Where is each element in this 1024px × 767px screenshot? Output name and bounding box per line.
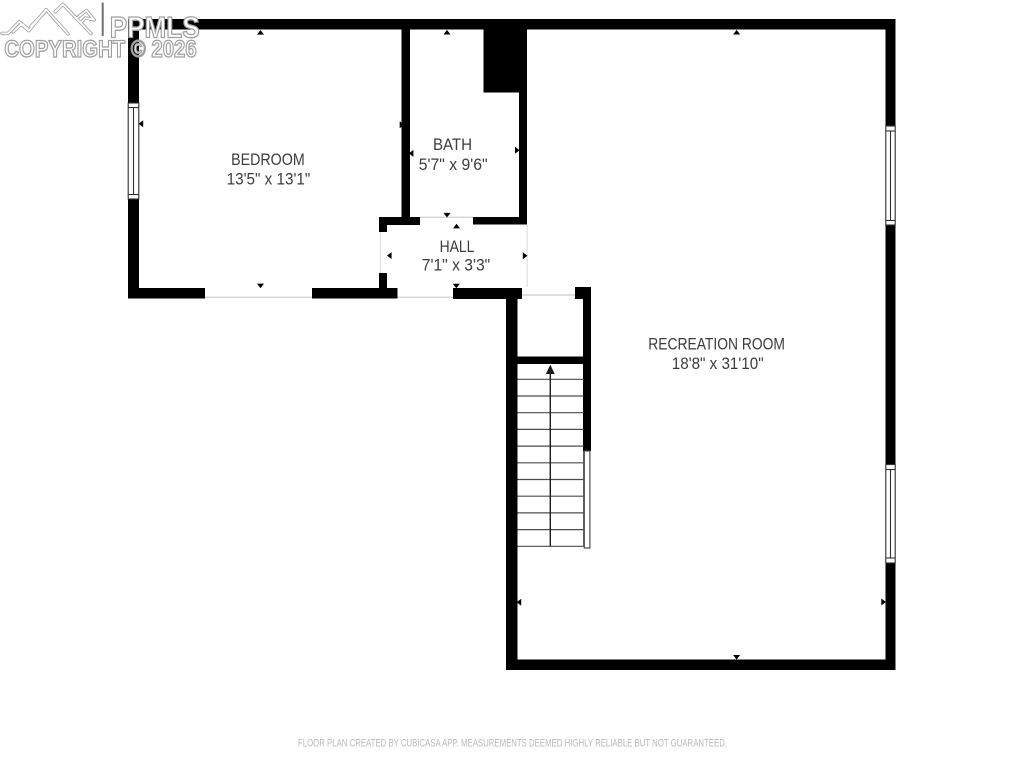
svg-text:BATH: BATH [433, 135, 472, 154]
svg-text:BEDROOM: BEDROOM [231, 150, 305, 169]
svg-text:18'8" x 31'10": 18'8" x 31'10" [672, 354, 764, 373]
svg-text:5'7" x 9'6": 5'7" x 9'6" [419, 155, 488, 174]
svg-text:RECREATION ROOM: RECREATION ROOM [648, 334, 785, 353]
svg-text:FLOOR PLAN CREATED BY CUBICASA: FLOOR PLAN CREATED BY CUBICASA APP. MEAS… [298, 738, 727, 750]
svg-text:7'1" x 3'3": 7'1" x 3'3" [422, 256, 491, 275]
svg-text:COPYRIGHT © 2026: COPYRIGHT © 2026 [4, 36, 196, 63]
svg-text:HALL: HALL [440, 237, 475, 256]
svg-text:13'5" x 13'1": 13'5" x 13'1" [227, 169, 311, 188]
